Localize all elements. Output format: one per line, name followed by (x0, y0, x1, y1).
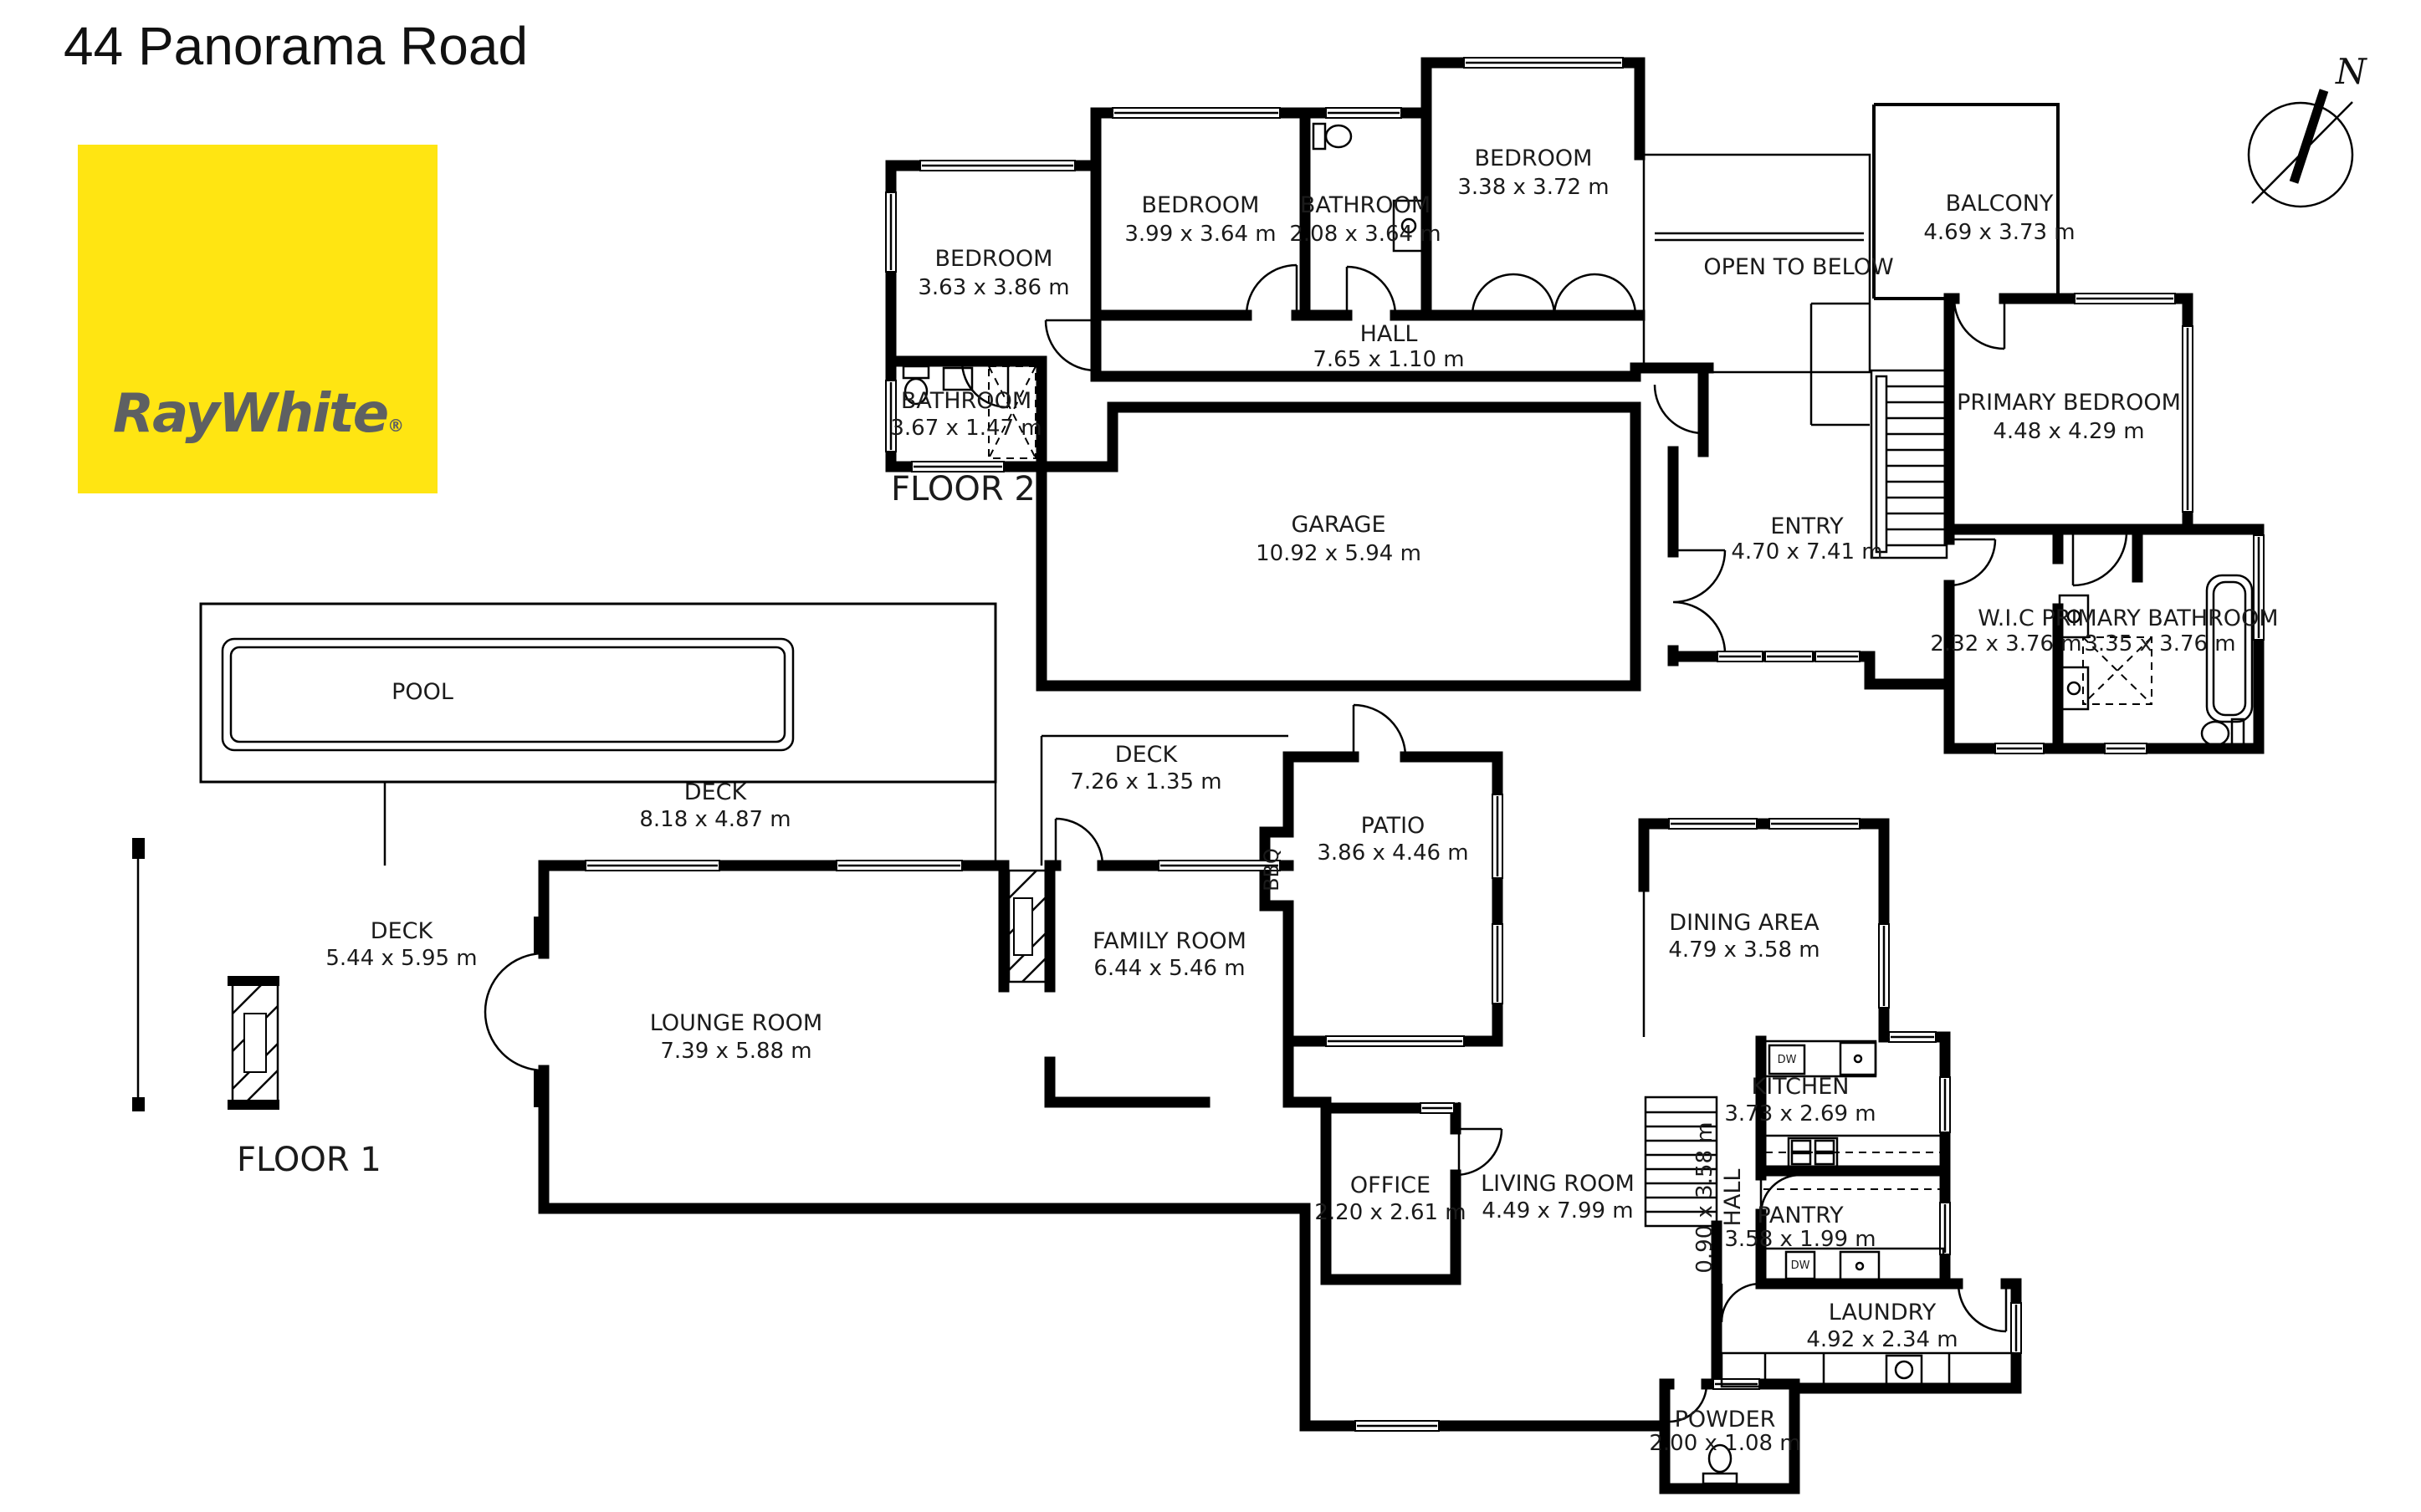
room-label-bedroom-right: BEDROOM (1475, 146, 1593, 171)
floorplan-page: 44 Panorama Road RayWhite® (0, 0, 2421, 1512)
floorplan-svg: BEDROOM 3.63 x 3.86 m BEDROOM 3.99 x 3.6… (0, 0, 2421, 1512)
floor1-labels: POOL DECK 8.18 x 4.87 m DECK 5.44 x 5.95… (237, 679, 1958, 1456)
room-dims-bedroom-mid: 3.99 x 3.64 m (1124, 222, 1276, 247)
label-open-to-below: OPEN TO BELOW (1703, 254, 1893, 280)
sink-icon (1840, 1252, 1879, 1280)
pool (201, 604, 996, 782)
sink-icon (944, 368, 972, 390)
room-label-deck-upper: DECK (684, 779, 748, 805)
washing-machine-icon (1886, 1356, 1922, 1385)
floor1-label: FLOOR 1 (237, 1141, 381, 1179)
room-label-deck-left: DECK (371, 918, 434, 944)
stairs-floor2 (1871, 370, 1947, 558)
sink-icon (1840, 1043, 1876, 1075)
room-label-living: LIVING ROOM (1481, 1171, 1635, 1197)
room-label-balcony: BALCONY (1946, 191, 2054, 217)
compass-icon: N (2249, 51, 2367, 207)
room-label-powder: POWDER (1675, 1407, 1776, 1433)
fireplace-icon (228, 976, 279, 1110)
open-to-below-void (1644, 155, 1870, 425)
room-dims-lounge: 7.39 x 5.88 m (660, 1039, 811, 1064)
room-label-dining: DINING AREA (1669, 910, 1820, 936)
room-dims-office: 2.20 x 2.61 m (1314, 1200, 1466, 1225)
room-label-hall2: HALL (1360, 321, 1418, 347)
fireplace-icon (1009, 871, 1050, 982)
room-dims-wic: 2.32 x 3.76 m (1930, 631, 2081, 656)
cooktop-bench (1763, 1136, 1943, 1169)
room-dims-powder: 2.00 x 1.08 m (1649, 1431, 1800, 1456)
room-dims-pantry: 3.58 x 1.99 m (1724, 1227, 1876, 1252)
room-label-family: FAMILY ROOM (1093, 928, 1246, 954)
room-dims-bathroom-left: 3.67 x 1.47 m (890, 416, 1042, 441)
room-dims-deck-upper: 8.18 x 4.87 m (639, 807, 791, 832)
floor2-plan: BEDROOM 3.63 x 3.86 m BEDROOM 3.99 x 3.6… (886, 58, 2279, 753)
room-dims-kitchen: 3.73 x 2.69 m (1724, 1101, 1876, 1126)
room-dims-dining: 4.79 x 3.58 m (1668, 937, 1820, 963)
bbq-label: BBQ (1260, 848, 1283, 891)
room-label-pantry: PANTRY (1757, 1203, 1844, 1228)
room-label-primary-bathroom: PRIMARY BATHROOM (2041, 605, 2278, 631)
room-dims-garage: 10.92 x 5.94 m (1256, 541, 1421, 566)
room-label-primary-bedroom: PRIMARY BEDROOM (1957, 390, 2181, 416)
room-label-lounge: LOUNGE ROOM (650, 1010, 822, 1036)
compass-north-label: N (2335, 51, 2367, 92)
room-dims-patio: 3.86 x 4.46 m (1317, 840, 1468, 866)
room-label-entry: ENTRY (1770, 513, 1844, 539)
laundry-bench (1722, 1353, 2013, 1387)
kitchen-bench: DW (1763, 1041, 1876, 1076)
room-label-deck-strip: DECK (1115, 742, 1179, 768)
room-dims-entry: 4.70 x 7.41 m (1731, 539, 1882, 564)
room-dims-hall1: 0.90 x 3.58 m (1692, 1121, 1717, 1273)
room-label-bedroom-left: BEDROOM (935, 246, 1053, 272)
room-label-office: OFFICE (1350, 1172, 1431, 1198)
dishwasher-label: DW (1778, 1054, 1797, 1066)
room-dims-balcony: 4.69 x 3.73 m (1923, 220, 2075, 245)
room-label-laundry: LAUNDRY (1829, 1300, 1937, 1326)
room-dims-family: 6.44 x 5.46 m (1093, 956, 1245, 981)
floor1-plan: DW DW (132, 604, 2021, 1489)
floor2-label: FLOOR 2 (891, 470, 1036, 508)
room-label-bedroom-mid: BEDROOM (1142, 192, 1260, 218)
wall-pier (534, 1070, 547, 1107)
wall-pier (534, 917, 547, 953)
room-label-bathroom-mid: BATHROOM (1300, 192, 1431, 218)
room-label-hall1: HALL (1720, 1169, 1746, 1227)
room-dims-bathroom-mid: 2.08 x 3.64 m (1289, 222, 1441, 247)
room-dims-primary-bedroom: 4.48 x 4.29 m (1993, 419, 2144, 444)
room-dims-deck-strip: 7.26 x 1.35 m (1070, 769, 1221, 794)
room-label-bathroom-left: BATHROOM (901, 388, 1031, 414)
room-label-kitchen: KITCHEN (1752, 1074, 1850, 1100)
room-dims-bedroom-left: 3.63 x 3.86 m (918, 275, 1069, 300)
room-dims-living: 4.49 x 7.99 m (1482, 1198, 1633, 1223)
room-label-patio: PATIO (1361, 813, 1425, 839)
room-dims-primary-bathroom: 3.35 x 3.76 m (2084, 631, 2235, 656)
room-label-pool: POOL (392, 679, 453, 705)
floor1-thin-edges (1459, 886, 1644, 1208)
room-dims-laundry: 4.92 x 2.34 m (1806, 1327, 1958, 1352)
room-label-garage: GARAGE (1291, 512, 1385, 538)
room-dims-deck-left: 5.44 x 5.95 m (325, 946, 477, 971)
room-label-wic: W.I.C (1978, 605, 2035, 631)
room-dims-bedroom-right: 3.38 x 3.72 m (1457, 175, 1609, 200)
dishwasher-label: DW (1791, 1259, 1810, 1272)
toilet-icon (1313, 124, 1351, 149)
room-dims-hall2: 7.65 x 1.10 m (1313, 347, 1464, 372)
